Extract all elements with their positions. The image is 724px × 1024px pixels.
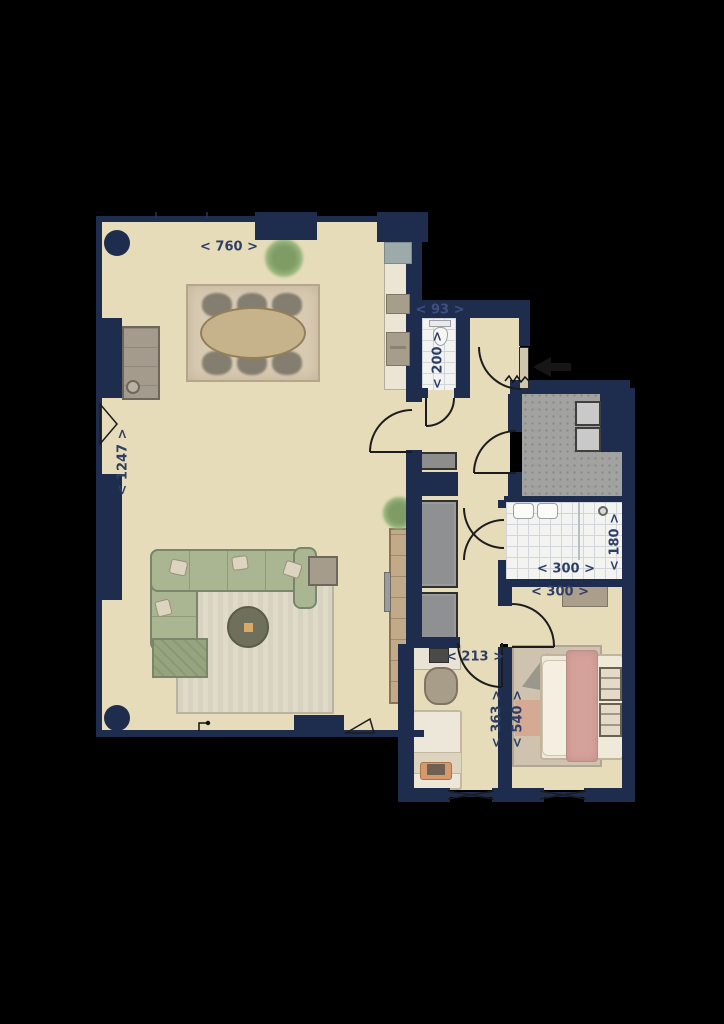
dim-bathroom-width: < 300 > (537, 562, 595, 577)
dim-living-width: < 760 > (200, 240, 258, 255)
dim-study-depth: < 363 > (490, 690, 505, 748)
dim-bedroom-depth: < 540 > (511, 690, 526, 748)
doors-windows-overlay (0, 0, 724, 1024)
dim-living-depth: < 1247 > (116, 428, 131, 495)
plan-marks (156, 212, 210, 731)
entrance-arrow (505, 357, 571, 382)
dim-bathroom-depth: < 180 > (608, 513, 623, 571)
floor-plan: < 760 > < 1247 > < 93 > < 200 > < 300 > … (0, 0, 724, 1024)
door-swings (370, 347, 554, 687)
dim-bedroom-width: < 300 > (531, 585, 589, 600)
dim-study-nook-width: < 213 > (446, 650, 504, 665)
dim-wc-depth: < 200 > (431, 331, 446, 389)
dim-wc-width: < 93 > (416, 303, 465, 318)
